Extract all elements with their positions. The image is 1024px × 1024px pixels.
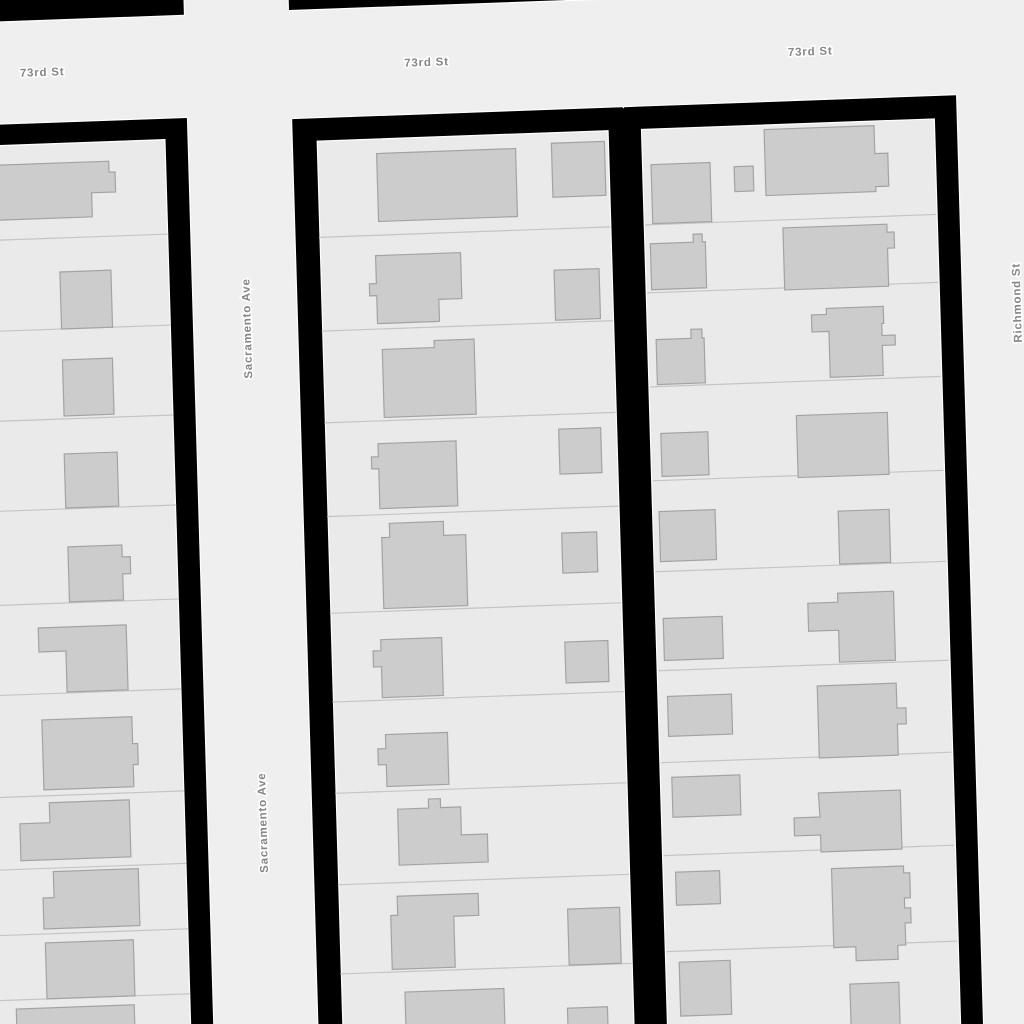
svg-text:Richmond St: Richmond St [1011, 263, 1024, 343]
svg-text:73rd St: 73rd St [20, 66, 65, 80]
svg-text:73rd St: 73rd St [404, 56, 449, 70]
svg-text:73rd St: 73rd St [788, 45, 833, 59]
